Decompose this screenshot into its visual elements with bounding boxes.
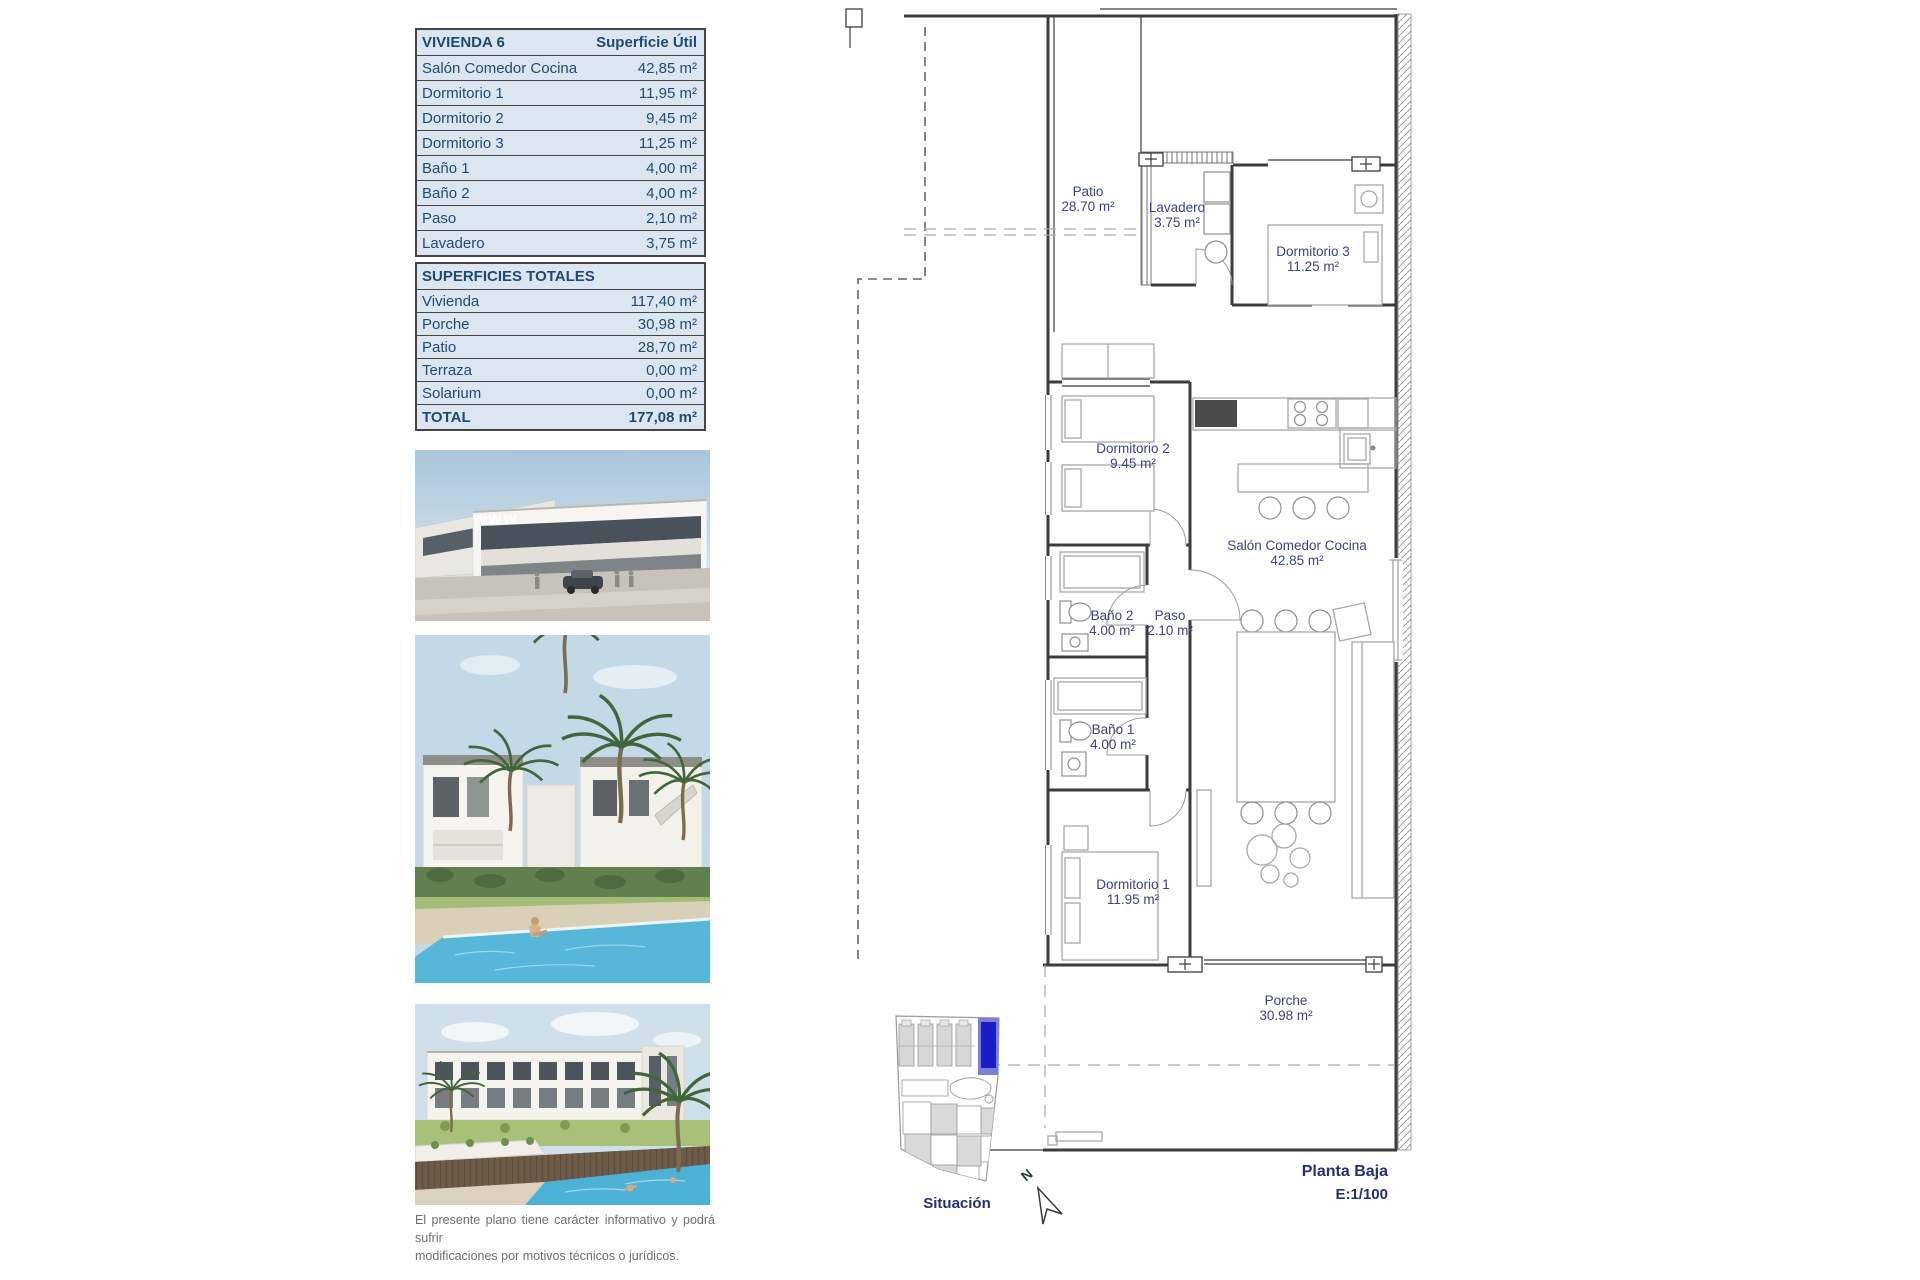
situation-map: Situación — [885, 1000, 1035, 1215]
table-total-row: TOTAL177,08 m² — [417, 404, 704, 429]
table-row: Salón Comedor Cocina42,85 m² — [417, 55, 704, 80]
row-value: 42,85 m² — [638, 60, 697, 77]
room-area-paso: 2.10 m² — [1147, 623, 1193, 638]
room-area-dormitorio2: 9.45 m² — [1110, 456, 1156, 471]
room-label-dormitorio1: Dormitorio 1 — [1096, 877, 1170, 892]
render-photo-pool — [415, 635, 710, 983]
row-label: Paso — [422, 210, 456, 227]
table-row: Paso2,10 m² — [417, 205, 704, 230]
row-value: 28,70 m² — [638, 339, 697, 356]
situation-label: Situación — [923, 1195, 991, 1212]
cloud — [593, 665, 677, 689]
room-label-patio: Patio — [1073, 184, 1104, 199]
table-row: Lavadero3,75 m² — [417, 230, 704, 255]
table-row: Patio28,70 m² — [417, 335, 704, 358]
table-row: Solarium0,00 m² — [417, 381, 704, 404]
dining-set — [1237, 610, 1335, 824]
breakfast-bar — [1238, 464, 1368, 519]
plan-title: Planta Baja — [1302, 1163, 1388, 1180]
room-label-paso: Paso — [1155, 608, 1186, 623]
disclaimer-line1: El presente plano tiene carácter informa… — [415, 1211, 715, 1247]
row-value: 4,00 m² — [646, 160, 697, 177]
row-label: TOTAL — [422, 409, 471, 426]
table-row: Baño 14,00 m² — [417, 155, 704, 180]
row-label: Solarium — [422, 385, 481, 402]
cloud — [441, 1022, 509, 1042]
row-value: 3,75 m² — [646, 235, 697, 252]
row-label: Baño 2 — [422, 185, 470, 202]
render-photo-apartments — [415, 1004, 710, 1205]
highlighted-unit — [981, 1022, 996, 1068]
table-row: Dormitorio 111,95 m² — [417, 80, 704, 105]
table-row: Dormitorio 29,45 m² — [417, 105, 704, 130]
garden — [415, 1120, 710, 1146]
room-area-dormitorio1: 11.95 m² — [1107, 892, 1160, 907]
row-value: 0,00 m² — [646, 362, 697, 379]
row-value: 11,95 m² — [639, 85, 697, 102]
row-value: 4,00 m² — [646, 185, 697, 202]
room-label-salon: Salón Comedor Cocina — [1227, 538, 1367, 553]
room-area-salon: 42.85 m² — [1270, 553, 1324, 568]
row-label: Vivienda — [422, 293, 479, 310]
kitchen-fixtures — [1193, 398, 1396, 468]
table-row: Dormitorio 311,25 m² — [417, 130, 704, 155]
room-area-dormitorio3: 11.25 m² — [1287, 259, 1340, 274]
row-value: 2,10 m² — [646, 210, 697, 227]
row-label: Terraza — [422, 362, 472, 379]
room-area-lavadero: 3.75 m² — [1154, 215, 1200, 230]
table-row: Terraza0,00 m² — [417, 358, 704, 381]
row-label: Baño 1 — [422, 160, 470, 177]
plan-scale: E:1/100 — [1335, 1186, 1388, 1203]
room-area-bano2: 4.00 m² — [1089, 623, 1135, 638]
room-area-porche: 30.98 m² — [1259, 1008, 1313, 1023]
room-area-patio: 28.70 m² — [1061, 199, 1115, 214]
disclaimer: El presente plano tiene carácter informa… — [415, 1211, 715, 1265]
cloud — [460, 655, 520, 675]
totals-table: SUPERFICIES TOTALES Vivienda117,40 m² Po… — [415, 262, 706, 431]
row-value: 0,00 m² — [646, 385, 697, 402]
cloud — [551, 1012, 639, 1036]
table-row: Porche30,98 m² — [417, 312, 704, 335]
insulated-wall — [1141, 152, 1151, 285]
row-label: Dormitorio 3 — [422, 135, 504, 152]
table-row: Baño 24,00 m² — [417, 180, 704, 205]
row-label: Dormitorio 2 — [422, 110, 504, 127]
row-label: Porche — [422, 316, 470, 333]
column-header: Superficie Útil — [596, 34, 697, 51]
row-label: Lavadero — [422, 235, 485, 252]
room-label-bano2: Baño 2 — [1091, 608, 1134, 623]
row-value: 9,45 m² — [646, 110, 697, 127]
room-labels: Patio 28.70 m² Lavadero 3.75 m² Dormitor… — [1061, 184, 1367, 1023]
render-photo-exterior: www — [415, 450, 710, 621]
table-title: VIVIENDA 6 — [422, 34, 505, 51]
watermark: www — [472, 509, 519, 528]
hedge — [415, 867, 710, 897]
room-area-bano1: 4.00 m² — [1090, 737, 1136, 752]
vivienda-table-header: VIVIENDA 6 Superficie Útil — [417, 30, 704, 55]
row-label: Patio — [422, 339, 456, 356]
plan-sheet: { "tables": { "vivienda": { "title": "VI… — [0, 0, 1920, 1280]
table-row: Vivienda117,40 m² — [417, 289, 704, 312]
room-label-porche: Porche — [1265, 993, 1308, 1008]
room-label-dormitorio2: Dormitorio 2 — [1096, 441, 1170, 456]
room-label-bano1: Baño 1 — [1092, 722, 1135, 737]
thin-walls — [850, 9, 1397, 1150]
row-value: 117,40 m² — [631, 293, 697, 310]
laundry-fixtures — [1204, 172, 1230, 263]
row-label: Salón Comedor Cocina — [422, 60, 577, 77]
wall-stub — [846, 9, 862, 27]
boundary-dashed-line — [858, 27, 925, 962]
room-label-dormitorio3: Dormitorio 3 — [1276, 244, 1350, 259]
row-value: 30,98 m² — [638, 316, 697, 333]
row-value: 177,08 m² — [629, 409, 697, 426]
totals-table-header: SUPERFICIES TOTALES — [417, 264, 704, 289]
row-value: 11,25 m² — [639, 135, 697, 152]
vivienda-table: VIVIENDA 6 Superficie Útil Salón Comedor… — [415, 28, 706, 257]
row-label: Dormitorio 1 — [422, 85, 504, 102]
table-title: SUPERFICIES TOTALES — [422, 268, 595, 285]
disclaimer-line2: modificaciones por motivos técnicos o ju… — [415, 1247, 715, 1265]
room-label-lavadero: Lavadero — [1149, 200, 1205, 215]
bedroom2-furniture — [1062, 344, 1154, 511]
north-arrow-glyph — [1038, 1188, 1062, 1224]
